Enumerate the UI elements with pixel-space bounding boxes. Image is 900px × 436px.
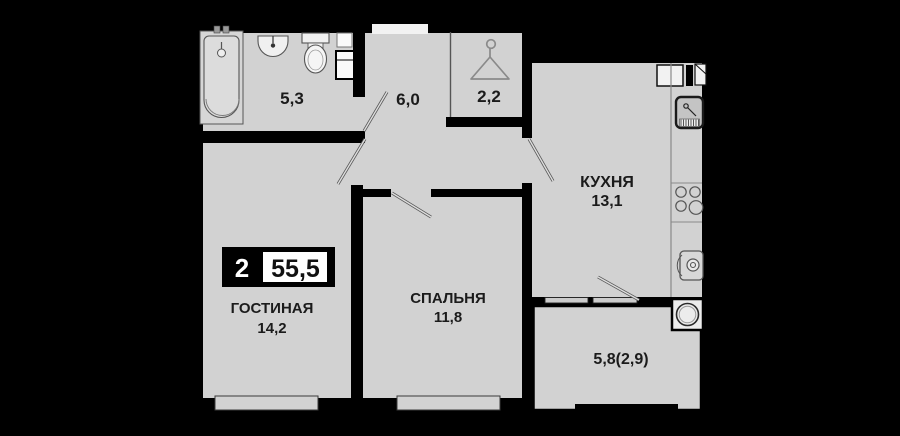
wall-kitchen-left-upper (522, 32, 532, 138)
wall-wardrobe-bottom (446, 117, 522, 127)
floor-plan-canvas: 2 55,5 5,3 6,0 2,2 КУХНЯ 13,1 ГОСТИНАЯ 1… (0, 0, 900, 436)
label-living-area: 14,2 (257, 320, 286, 337)
wall-kitchen-top (522, 55, 710, 63)
label-hallway-area: 6,0 (396, 90, 420, 109)
entrance-door-opening (372, 24, 428, 34)
wall-bedroom-top-left (363, 189, 391, 197)
wall-bathroom-bottom (195, 131, 365, 143)
label-kitchen-area: 13,1 (591, 193, 622, 210)
label-wardrobe-area: 2,2 (477, 87, 501, 106)
area-badge: 2 55,5 (222, 247, 335, 287)
label-kitchen-name: КУХНЯ (580, 174, 634, 191)
bathtub-icon (200, 26, 243, 124)
kitchen-sink-icon (676, 97, 703, 128)
wall-bedroom-top-right (431, 189, 532, 197)
window-bedroom (397, 396, 500, 410)
window-living (215, 396, 318, 410)
window-kitchen-balcony-1 (545, 298, 588, 304)
washing-machine-icon (672, 299, 703, 330)
label-balcony-area: 5,8(2,9) (593, 351, 648, 368)
fridge-icon (677, 251, 703, 280)
toilet-icon (302, 33, 329, 73)
label-living-name: ГОСТИНАЯ (231, 300, 314, 317)
window-kitchen-balcony-2 (593, 298, 637, 304)
floor-plan-svg: 2 55,5 5,3 6,0 2,2 КУХНЯ 13,1 ГОСТИНАЯ 1… (0, 0, 900, 436)
wall-kitchen-left-lower (522, 183, 532, 406)
label-bathroom-area: 5,3 (280, 89, 304, 108)
badge-total-area: 55,5 (271, 255, 320, 283)
boiler-icon (336, 33, 354, 79)
wall-living-bedroom (351, 185, 363, 406)
badge-room-count: 2 (235, 253, 249, 283)
balcony-parapet-notch (575, 404, 678, 412)
label-bedroom-name: СПАЛЬНЯ (410, 290, 486, 307)
label-bedroom-area: 11,8 (434, 309, 462, 326)
vent-shaft-icon (657, 64, 706, 86)
